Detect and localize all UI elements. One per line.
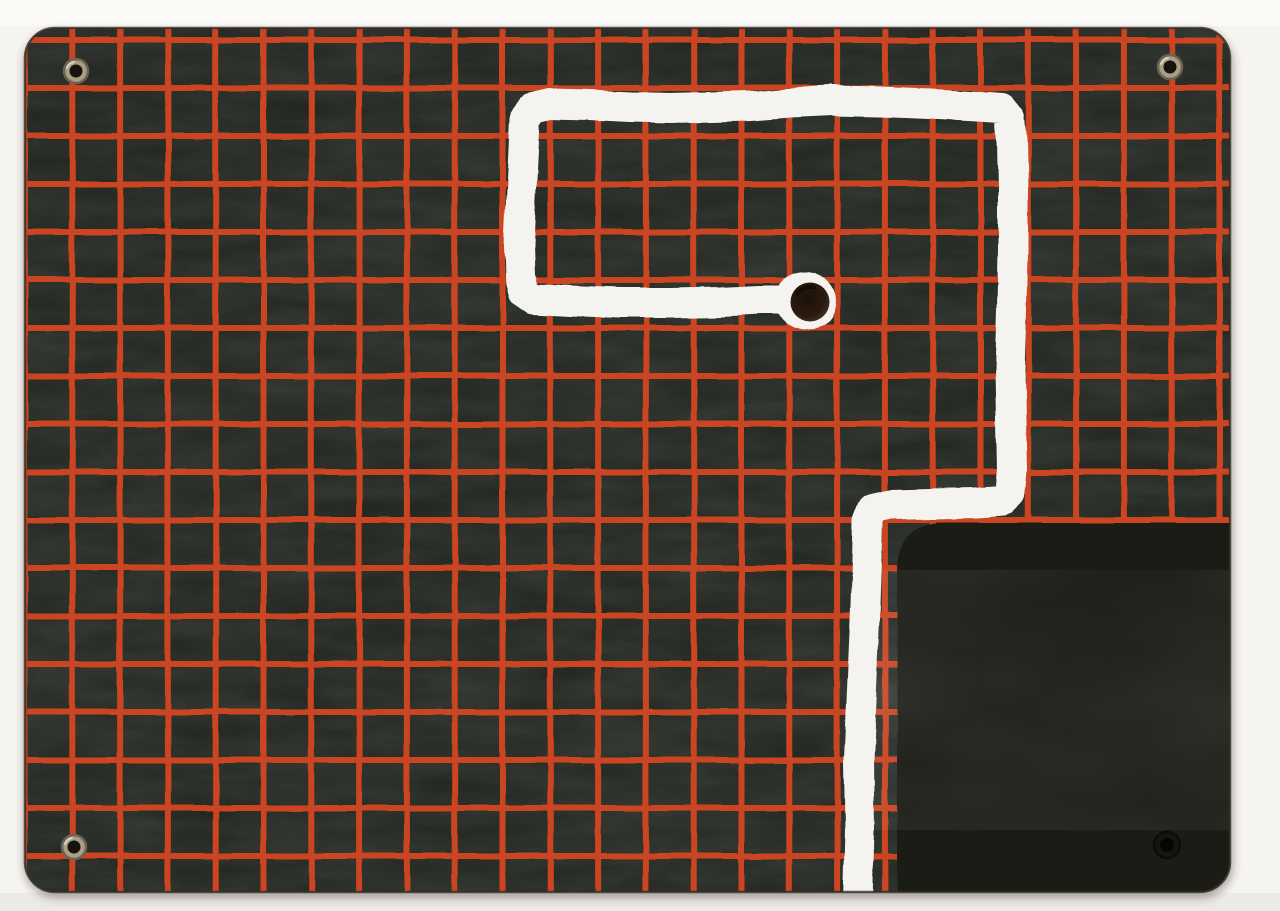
scanned-panel-photo [0, 0, 1280, 911]
eyelet-top-left [64, 59, 88, 83]
eyelet-hole [1160, 838, 1174, 852]
scene-svg [0, 0, 1280, 911]
eyelet-bottom-right [1154, 832, 1180, 858]
eyelet-top-right [1158, 55, 1182, 79]
route-end-hole [791, 283, 830, 322]
eyelet-bottom-left [62, 835, 86, 859]
board [21, 24, 1240, 900]
eyelet-hole [70, 65, 83, 78]
eyelet-hole [68, 841, 81, 854]
scan-top-band [0, 0, 1280, 26]
overpaint-brush-smear [860, 570, 1240, 830]
eyelet-hole [1164, 61, 1177, 74]
overpainted-patch [860, 523, 1240, 896]
